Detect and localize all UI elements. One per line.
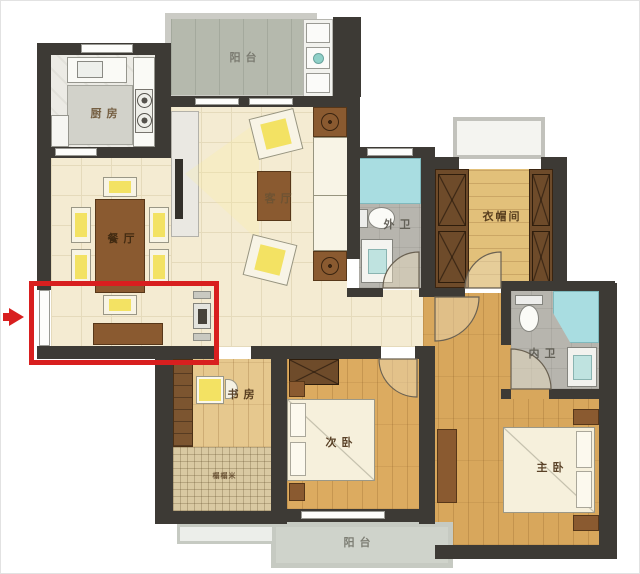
wall bbox=[165, 96, 317, 107]
armchair-cushion bbox=[260, 118, 292, 150]
laundry-niche bbox=[303, 19, 333, 97]
wall bbox=[317, 96, 360, 107]
dining-table bbox=[95, 199, 145, 293]
annotation-arrow-icon bbox=[9, 308, 24, 326]
wall bbox=[501, 281, 511, 345]
wall bbox=[435, 288, 465, 297]
laundry-sink-icon bbox=[306, 73, 330, 93]
label-living-room: 客厅 bbox=[260, 190, 297, 206]
wardrobe-door bbox=[438, 231, 466, 283]
side-table bbox=[313, 107, 347, 137]
toilet-icon bbox=[359, 209, 368, 228]
wall bbox=[541, 157, 567, 169]
plant-icon bbox=[321, 257, 339, 275]
cloakroom-floor bbox=[469, 169, 529, 288]
wall bbox=[271, 346, 287, 524]
cloakroom-window-bay bbox=[453, 117, 545, 159]
wardrobe-door bbox=[532, 231, 550, 283]
wardrobe-right bbox=[529, 169, 553, 288]
window bbox=[81, 44, 133, 53]
side-table bbox=[313, 251, 347, 281]
chair-cushion bbox=[75, 213, 88, 237]
kitchen-left-cabinet bbox=[51, 115, 69, 147]
label-second-bedroom: 次卧 bbox=[321, 434, 358, 450]
label-study: 书房 bbox=[223, 386, 260, 402]
wardrobe-door bbox=[532, 174, 550, 226]
label-master-bedroom: 主卧 bbox=[532, 459, 569, 475]
window bbox=[249, 98, 293, 105]
wall bbox=[599, 283, 617, 559]
wall bbox=[347, 288, 383, 297]
wall bbox=[287, 346, 381, 359]
label-kitchen: 厨房 bbox=[86, 105, 123, 121]
chair-cushion bbox=[153, 255, 166, 279]
armchair-cushion bbox=[254, 244, 286, 276]
wall bbox=[37, 43, 51, 161]
dining-chair bbox=[103, 177, 137, 197]
wall bbox=[419, 346, 435, 524]
kitchen-sink-icon bbox=[77, 61, 103, 78]
toilet-icon bbox=[515, 295, 543, 305]
label-balcony-bottom: 阳台 bbox=[339, 534, 376, 550]
window bbox=[301, 511, 385, 519]
wardrobe-left bbox=[435, 169, 469, 288]
nightstand bbox=[289, 483, 305, 501]
pillow-icon bbox=[290, 442, 306, 476]
shower-area bbox=[359, 158, 421, 204]
plant-icon bbox=[321, 113, 339, 131]
door-opening bbox=[511, 389, 549, 399]
wall bbox=[435, 157, 459, 169]
wall bbox=[155, 346, 173, 524]
dining-chair bbox=[71, 207, 91, 243]
tv-icon bbox=[175, 159, 183, 219]
study-window-bay bbox=[177, 524, 275, 544]
wall bbox=[435, 545, 615, 559]
wall bbox=[333, 17, 361, 97]
basin-icon bbox=[368, 249, 387, 274]
nightstand bbox=[289, 381, 305, 397]
wall bbox=[553, 157, 567, 283]
wall bbox=[419, 288, 435, 297]
label-tatami: 榻榻米 bbox=[208, 471, 237, 481]
window bbox=[55, 148, 97, 156]
label-guest-bathroom: 外卫 bbox=[379, 216, 416, 232]
dining-chair bbox=[149, 207, 169, 243]
chair-cushion bbox=[75, 255, 88, 279]
wardrobe-door bbox=[438, 174, 466, 226]
desk-lamp-icon bbox=[197, 377, 223, 403]
laundry-unit-icon bbox=[306, 23, 330, 43]
toilet-bowl-icon bbox=[519, 305, 539, 332]
stove-burner-icon bbox=[137, 113, 152, 128]
pillow-icon bbox=[576, 431, 592, 468]
label-cloakroom: 衣帽间 bbox=[481, 208, 522, 224]
wall bbox=[37, 158, 51, 290]
nightstand bbox=[573, 515, 599, 531]
dining-chair bbox=[149, 249, 169, 285]
chair-cushion bbox=[153, 213, 166, 237]
sink-icon bbox=[361, 239, 393, 283]
highlight-box bbox=[29, 281, 219, 365]
wall bbox=[347, 96, 360, 259]
sofa bbox=[313, 137, 349, 251]
wall bbox=[155, 511, 287, 524]
bookshelf bbox=[173, 359, 193, 447]
label-inner-bathroom: 内卫 bbox=[524, 345, 561, 361]
label-balcony-top: 阳台 bbox=[225, 49, 262, 65]
pillow-icon bbox=[576, 471, 592, 508]
pillow-icon bbox=[290, 403, 306, 437]
master-dresser bbox=[437, 429, 457, 503]
floor-plan: 厨房 阳台 客厅 餐厅 外卫 衣帽间 内卫 书房 榻榻米 次卧 主卧 阳台 bbox=[0, 0, 640, 574]
washer-drum-icon bbox=[313, 53, 324, 64]
wall bbox=[251, 346, 273, 359]
basin-icon bbox=[573, 355, 592, 380]
sink-icon bbox=[567, 347, 597, 387]
wall bbox=[421, 147, 435, 293]
nightstand bbox=[573, 409, 599, 425]
window bbox=[367, 148, 413, 156]
stove-burner-icon bbox=[137, 93, 152, 108]
washer-icon bbox=[306, 47, 330, 69]
dining-chair bbox=[71, 249, 91, 285]
window bbox=[195, 98, 239, 105]
chair-cushion bbox=[109, 181, 131, 194]
label-dining-room: 餐厅 bbox=[103, 230, 140, 246]
